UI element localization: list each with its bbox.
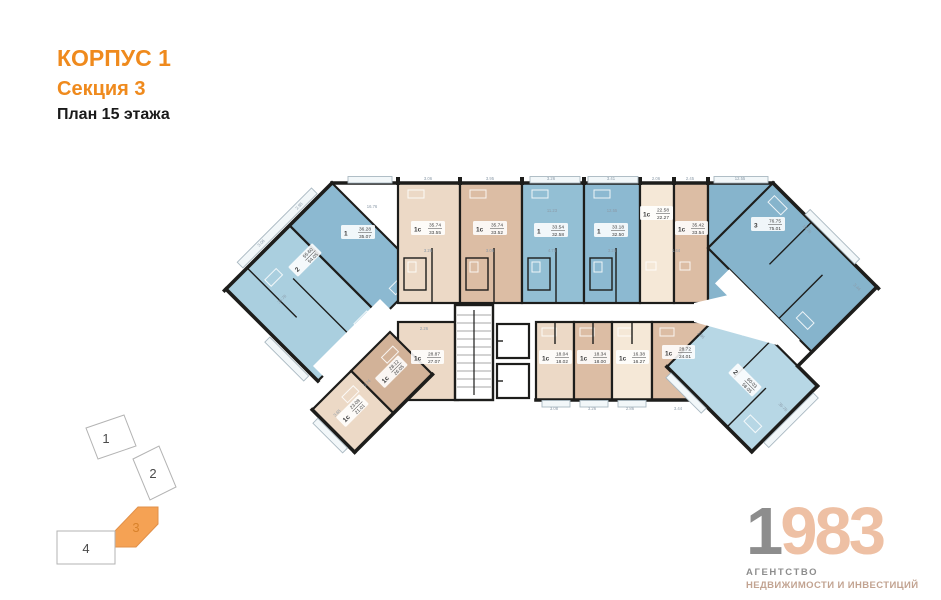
dimension-label: 2.26 [420, 326, 429, 331]
logo-year-rest: 983 [780, 494, 883, 569]
svg-text:35.42: 35.42 [692, 223, 704, 229]
svg-text:24.01: 24.01 [679, 354, 691, 360]
svg-text:32.50: 32.50 [612, 232, 624, 238]
dimension-label: 3.26 [588, 406, 597, 411]
dimension-label: 11.23 [547, 208, 558, 213]
dimension-label: 3.06 [424, 176, 433, 181]
apartment-label: 1 33.54 32.58 [534, 223, 568, 238]
dimension-label: 2.45 [686, 176, 695, 181]
apartment-label: 1с 18.04 18.02 [539, 350, 572, 365]
svg-text:33.55: 33.55 [429, 230, 441, 236]
svg-text:1с: 1с [643, 211, 651, 218]
svg-text:35.07: 35.07 [359, 234, 371, 240]
svg-text:33.54: 33.54 [552, 225, 564, 231]
apartment-unit-1c-d [674, 183, 708, 303]
logo-year-first: 1 [746, 494, 780, 569]
apartment-unit-1c-b [460, 183, 522, 303]
section-locator: 1 2 3 4 [57, 415, 176, 564]
apartment-label: 1с 18.34 18.00 [577, 350, 610, 365]
svg-text:18.02: 18.02 [556, 359, 568, 365]
svg-text:1с: 1с [619, 355, 627, 362]
apartment-label: 1с 16.38 16.27 [616, 350, 649, 365]
locator-label-3: 3 [132, 520, 139, 535]
svg-text:22.27: 22.27 [657, 215, 669, 221]
svg-text:1с: 1с [580, 355, 588, 362]
svg-text:76.75: 76.75 [769, 219, 781, 225]
svg-text:33.54: 33.54 [692, 230, 704, 236]
apartment-label: 1 36.28 35.07 [341, 225, 375, 240]
dimension-label: 12.55 [607, 208, 618, 213]
svg-text:1: 1 [537, 228, 541, 235]
dimension-label: 3.08 [550, 406, 559, 411]
svg-text:1с: 1с [414, 226, 422, 233]
locator-section-1 [86, 415, 136, 459]
agency-logo: 1983 АГЕНТСТВО НЕДВИЖИМОСТИ И ИНВЕСТИЦИЙ [746, 498, 936, 591]
dimension-label: 2.06 [652, 176, 661, 181]
apartment-label: 3 76.75 75.01 [751, 217, 785, 232]
dimension-label: 16.76 [367, 204, 378, 209]
svg-text:28.72: 28.72 [679, 347, 691, 353]
dimension-label: 3.26 [547, 176, 556, 181]
dimension-label: 3.06 [486, 248, 495, 253]
apartment-label: 1с 28.87 27.07 [411, 350, 444, 365]
svg-text:1с: 1с [678, 226, 686, 233]
svg-text:16.38: 16.38 [633, 352, 645, 358]
locator-label-1: 1 [102, 431, 109, 446]
apartment-label: 1с 35.74 33.52 [473, 221, 507, 236]
apartment-unit-1c-a [398, 183, 460, 303]
apartment-unit-1c-c [640, 183, 674, 303]
balcony [348, 177, 392, 184]
dimension-label: 4.75 [548, 248, 557, 253]
svg-text:3: 3 [754, 222, 758, 229]
svg-text:35.74: 35.74 [491, 223, 503, 229]
dimension-label: 2.86 [626, 406, 635, 411]
apartment-label: 1с 35.74 33.55 [411, 221, 445, 236]
svg-text:16.27: 16.27 [633, 359, 645, 365]
locator-label-2: 2 [149, 466, 156, 481]
svg-text:1с: 1с [414, 355, 422, 362]
svg-text:33.52: 33.52 [491, 230, 503, 236]
page: КОРПУС 1 Секция 3 План 15 этажа [0, 0, 941, 600]
dimension-label: 3.41 [607, 176, 616, 181]
svg-text:75.01: 75.01 [769, 226, 781, 232]
svg-text:28.87: 28.87 [428, 352, 440, 358]
top-band [332, 177, 773, 304]
apartment-label: 1с 28.72 24.01 [662, 345, 695, 360]
apartment-label: 1с 22.58 22.27 [640, 206, 673, 221]
logo-line2: НЕДВИЖИМОСТИ И ИНВЕСТИЦИЙ [746, 580, 936, 591]
apartment-unit-1k-a [522, 183, 584, 303]
dimension-label: 3.26 [424, 248, 433, 253]
dimension-label: 3.26 [608, 248, 617, 253]
dimension-label: 12.55 [735, 176, 746, 181]
dimension-label: 3.44 [674, 406, 683, 411]
svg-text:1: 1 [597, 228, 601, 235]
svg-text:35.74: 35.74 [429, 223, 441, 229]
svg-text:36.28: 36.28 [359, 227, 371, 233]
apartment-label: 1с 35.42 33.54 [675, 221, 708, 236]
svg-text:27.07: 27.07 [428, 359, 440, 365]
apartment-label: 1 33.18 32.50 [594, 223, 628, 238]
logo-year: 1983 [746, 498, 936, 565]
stair-core [455, 305, 529, 400]
svg-text:22.58: 22.58 [657, 208, 669, 214]
svg-text:18.34: 18.34 [594, 352, 606, 358]
svg-text:32.58: 32.58 [552, 232, 564, 238]
dimension-label: 1.44 [672, 248, 681, 253]
svg-text:18.04: 18.04 [556, 352, 568, 358]
svg-text:1с: 1с [665, 350, 673, 357]
svg-text:1с: 1с [542, 355, 550, 362]
svg-text:1с: 1с [476, 226, 484, 233]
svg-text:1: 1 [344, 230, 348, 237]
svg-text:33.18: 33.18 [612, 225, 624, 231]
locator-label-4: 4 [82, 541, 89, 556]
svg-text:18.00: 18.00 [594, 359, 606, 365]
dimension-label: 3.95 [486, 176, 495, 181]
